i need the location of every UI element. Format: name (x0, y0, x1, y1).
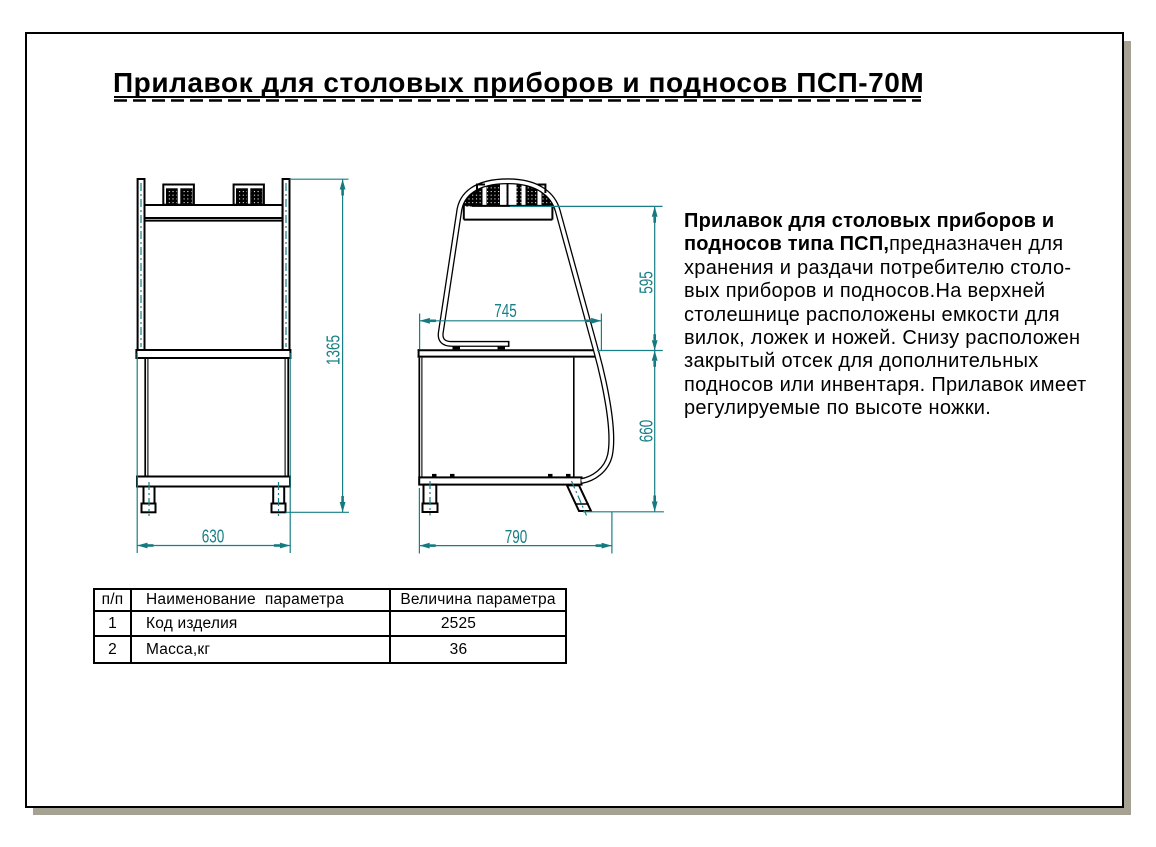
svg-text:1365: 1365 (323, 335, 343, 365)
svg-text:660: 660 (636, 420, 656, 443)
svg-text:595: 595 (636, 271, 656, 294)
svg-text:630: 630 (202, 527, 225, 547)
svg-text:790: 790 (505, 527, 528, 547)
svg-text:745: 745 (494, 301, 517, 321)
